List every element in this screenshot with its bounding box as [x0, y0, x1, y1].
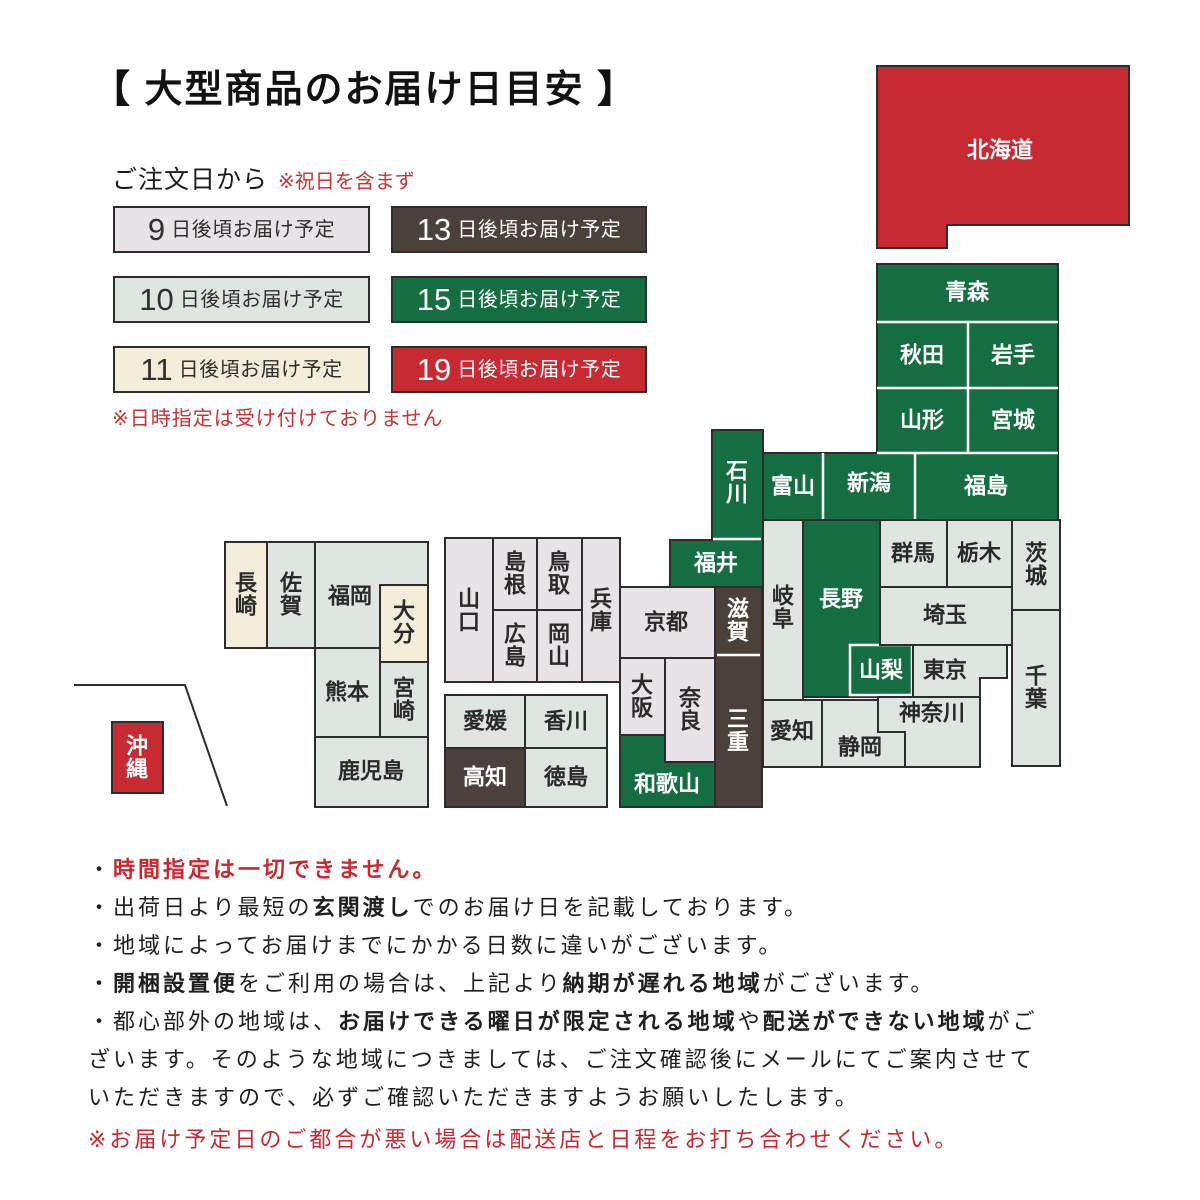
note-line-1: ・時間指定は一切できません。 — [88, 851, 1168, 889]
note-line-2: ・出荷日より最短の玄関渡しでのお届け日を記載しております。 — [88, 889, 1168, 927]
prefecture-label-aichi: 愛知 — [770, 719, 814, 744]
prefecture-label-wakayama: 和歌山 — [634, 772, 700, 797]
note-segment: 開梱設置便 — [113, 971, 238, 996]
prefecture-label-okayama: 岡山 — [548, 621, 570, 669]
prefecture-label-hokkaido: 北海道 — [967, 138, 1033, 163]
prefecture-label-akita: 秋田 — [900, 343, 944, 368]
note-segment: ・地域によってお届けまでにかかる日数に違いがございます。 — [88, 933, 783, 958]
note-segment: 配送ができない地域 — [763, 1009, 988, 1034]
prefecture-label-oita: 大分 — [393, 598, 415, 646]
prefecture-label-kanagawa: 神奈川 — [899, 701, 965, 726]
note-segment: をご利用の場合は、上記より — [238, 971, 563, 996]
note-segment: ※お届け予定日のご都合が悪い場合は配送店と日程をお打ち合わせください。 — [88, 1127, 959, 1152]
prefecture-label-hiroshima: 広島 — [504, 621, 526, 669]
prefecture-label-ishikawa: 石川 — [725, 458, 748, 506]
note-segment: 玄関渡し — [313, 895, 413, 920]
note-line-5: ・都心部外の地域は、お届けできる曜日が限定される地域や配送ができない地域がご — [88, 1003, 1168, 1041]
note-segment: でのお届け日を記載しております。 — [413, 895, 809, 920]
prefecture-label-miyagi: 宮城 — [991, 408, 1035, 433]
prefecture-label-miyazaki: 宮崎 — [393, 675, 415, 723]
delivery-info-page: { "title": "【 大型商品のお届け日目安 】", "legend": … — [0, 0, 1200, 1200]
note-segment: ・ — [88, 971, 113, 996]
prefecture-label-nagasaki: 長崎 — [235, 570, 258, 618]
prefecture-label-osaka: 大阪 — [631, 672, 653, 720]
note-line-8: ※お届け予定日のご都合が悪い場合は配送店と日程をお打ち合わせください。 — [88, 1121, 1168, 1159]
prefecture-label-yamagata: 山形 — [900, 408, 944, 433]
prefecture-label-fukui: 福井 — [693, 551, 738, 576]
prefecture-label-tokyo: 東京 — [923, 658, 967, 683]
prefecture-label-nagano: 長野 — [819, 587, 863, 612]
prefecture-label-kagawa: 香川 — [544, 709, 588, 734]
note-line-7: いただきますので、必ずご確認いただきますようお願いしたします。 — [88, 1079, 1168, 1117]
note-segment: ざいます。そのような地域につきましては、ご注文確認後にメールにてご案内させて — [88, 1047, 1035, 1072]
prefecture-label-hyogo: 兵庫 — [590, 586, 612, 634]
prefecture-label-shimane: 島根 — [504, 549, 526, 597]
prefecture-label-yamaguchi: 山口 — [458, 586, 480, 634]
prefecture-label-tokushima: 徳島 — [543, 765, 588, 790]
prefecture-label-shiga: 滋賀 — [726, 596, 749, 644]
prefecture-label-tochigi: 栃木 — [957, 541, 1002, 566]
note-line-6: ざいます。そのような地域につきましては、ご注文確認後にメールにてご案内させて — [88, 1041, 1168, 1079]
note-segment: がございます。 — [763, 971, 936, 996]
note-line-4: ・開梱設置便をご利用の場合は、上記より納期が遅れる地域がございます。 — [88, 965, 1168, 1003]
prefecture-label-kumamoto: 熊本 — [325, 680, 369, 705]
prefecture-label-saga: 佐賀 — [279, 570, 302, 618]
prefecture-label-chiba: 千葉 — [1024, 663, 1048, 711]
prefecture-label-shizuoka: 静岡 — [838, 735, 882, 760]
prefecture-label-aomori: 青森 — [945, 280, 990, 305]
note-segment: 納期が遅れる地域 — [563, 971, 763, 996]
prefecture-label-kyoto: 京都 — [644, 610, 688, 635]
prefecture-label-fukuoka: 福岡 — [327, 584, 372, 609]
prefecture-label-tottori: 鳥取 — [548, 549, 570, 597]
prefecture-label-kagoshima: 鹿児島 — [338, 759, 404, 784]
note-segment: 時間指定は一切できません。 — [113, 857, 437, 882]
note-segment: お届けできる曜日が限定される地域 — [338, 1009, 738, 1034]
prefecture-label-gifu: 岐阜 — [772, 583, 795, 631]
note-segment: いただきますので、必ずご確認いただきますようお願いしたします。 — [88, 1085, 860, 1110]
prefecture-label-nara: 奈良 — [678, 685, 702, 733]
note-line-3: ・地域によってお届けまでにかかる日数に違いがございます。 — [88, 927, 1168, 965]
prefecture-label-fukushima: 福島 — [963, 474, 1008, 499]
notes-list: ・時間指定は一切できません。・出荷日より最短の玄関渡しでのお届け日を記載しており… — [88, 851, 1168, 1159]
note-segment: ・都心部外の地域は、 — [88, 1009, 338, 1034]
prefecture-label-kochi: 高知 — [463, 765, 507, 790]
prefecture-label-ibaraki: 茨城 — [1025, 540, 1047, 588]
prefecture-label-mie: 三重 — [727, 706, 749, 754]
prefecture-label-toyama: 富山 — [771, 474, 815, 499]
note-segment: がご — [988, 1009, 1038, 1034]
prefecture-label-niigata: 新潟 — [847, 471, 891, 496]
prefecture-label-gunma: 群馬 — [891, 541, 935, 566]
prefecture-label-saitama: 埼玉 — [923, 603, 967, 628]
note-segment: や — [738, 1009, 763, 1034]
prefecture-label-okinawa: 沖縄 — [126, 733, 148, 781]
prefecture-label-ehime: 愛媛 — [463, 709, 508, 734]
prefecture-label-yamanashi: 山梨 — [859, 658, 903, 683]
note-segment: ・出荷日より最短の — [88, 895, 313, 920]
note-segment: ・ — [88, 857, 113, 882]
prefecture-label-iwate: 岩手 — [990, 343, 1035, 368]
